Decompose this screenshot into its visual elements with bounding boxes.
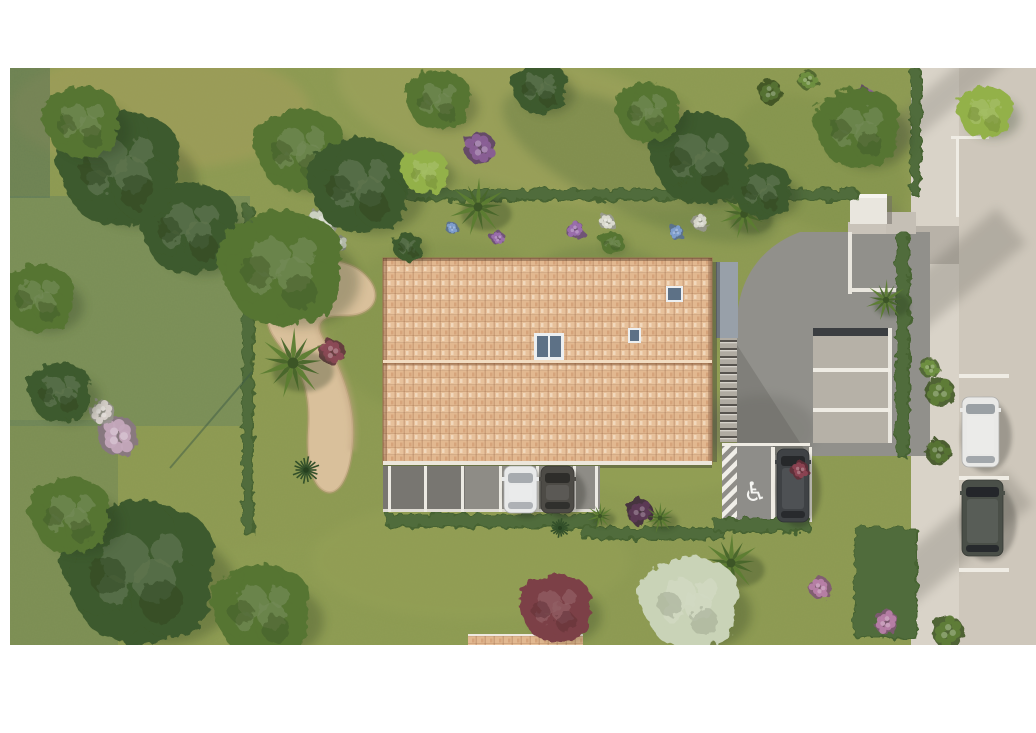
carport-post	[595, 466, 598, 512]
parking-marking-line	[771, 447, 775, 522]
flower-bush	[491, 231, 505, 245]
side-canopy	[716, 262, 738, 338]
flower-bush	[669, 225, 683, 239]
carport-post	[461, 466, 464, 512]
carport-post	[388, 466, 391, 512]
site-plan-render: ♿	[0, 0, 1036, 733]
handicap-parking-spot: ♿	[722, 445, 773, 522]
parking-marking-line	[813, 368, 890, 372]
handicap-hatch	[722, 445, 737, 522]
roof-ridge	[383, 360, 712, 363]
flower-bush	[874, 610, 898, 634]
louver-stairs	[720, 338, 737, 442]
roof-skylight-double	[534, 333, 564, 360]
carport-post	[424, 466, 427, 512]
hedge	[896, 232, 910, 458]
handicap-symbol: ♿	[743, 477, 767, 508]
flower-bush	[925, 377, 955, 407]
courtyard-wall	[848, 232, 852, 294]
flower-bush	[627, 499, 653, 525]
flower-bush	[758, 80, 782, 104]
roof-eave	[383, 461, 712, 465]
road-marking-line	[959, 374, 1009, 378]
roof-skylight-upper	[666, 286, 683, 302]
parking-marking-line	[722, 443, 810, 446]
parking-bays	[813, 328, 892, 443]
road-marking-line	[959, 476, 1009, 480]
parking-marking-line	[813, 408, 890, 412]
hedge	[580, 527, 726, 540]
carport-post	[499, 466, 502, 512]
road-marking-line	[959, 568, 1009, 572]
road-marking-line	[956, 139, 959, 217]
roof-skylight-small	[628, 328, 641, 343]
hedge	[910, 68, 922, 196]
flower-bush	[464, 132, 496, 164]
flower-bush	[446, 222, 458, 234]
flower-bush	[920, 358, 940, 378]
flower-bush	[791, 461, 809, 479]
